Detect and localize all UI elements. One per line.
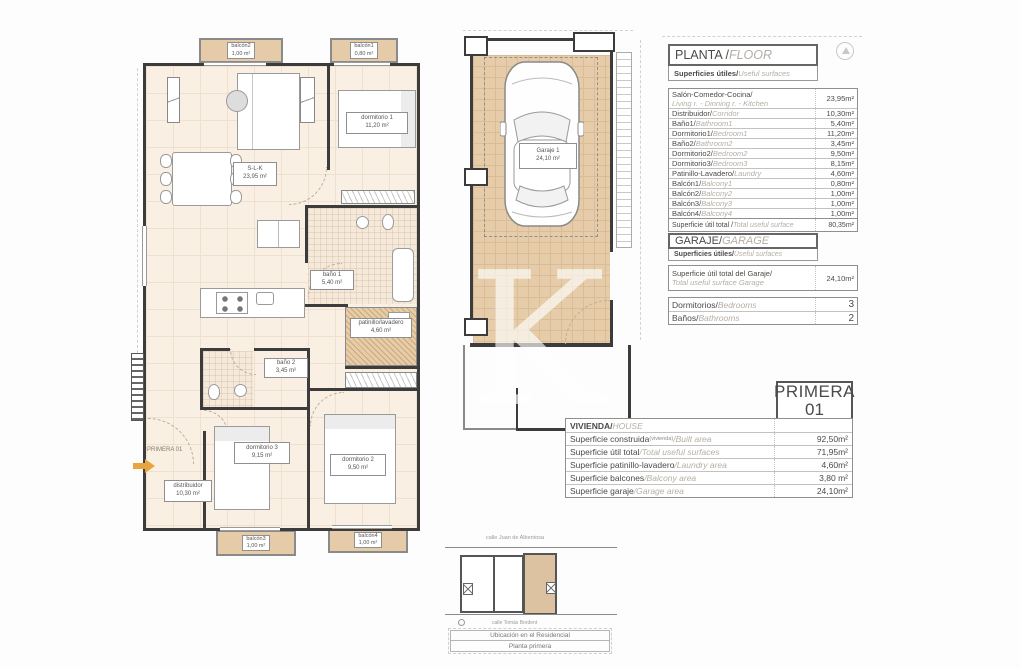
row-label-en: Bedrooms [718,300,757,310]
arrow-tip [145,459,155,473]
row-label: Balcón1/Balcony1 [669,179,815,188]
row-label-en: Bathrooms [698,313,739,323]
caption-line-2: Planta primera [450,641,610,652]
room-label-slk: S-L-K 23,95 m² [233,162,277,186]
row-label-es: Distribuidor/ [672,109,712,118]
balcony-3: balcón3 1,00 m² [216,530,296,556]
room-name: balcón3 [246,536,265,543]
floorplan-sheet: balcón2 1,00 m² balcón1 0,80 m² balcón3 … [0,0,1020,669]
row-value: 3,80 m² [774,472,852,484]
street-line [445,614,617,615]
toilet-bath1 [382,214,394,230]
row-label-en: Balcony3 [701,199,732,208]
title-block-line1: PRIMERA [774,383,855,401]
row-value: 3,45m² [815,139,857,148]
entrance-arrow-icon [133,459,157,473]
row-value: 2 [815,312,857,324]
room-label-balcon4: balcón4 1,00 m² [354,532,381,548]
row-label-es: Balcón4/ [672,209,701,218]
row-value: 1,00m² [815,199,857,208]
room-name: balcón2 [231,43,250,50]
room-name: baño 2 [277,360,295,368]
title-en: GARAGE [722,235,769,247]
row-label-en: Corridor [712,109,739,118]
wall-segment [470,56,473,168]
table-row: Balcón2/Balcony2 1,00m² [669,188,857,198]
wardrobe-dorm1 [341,190,415,204]
street-line [445,547,617,548]
row-label-es: Baño2/ [672,139,696,148]
table-row: Superficie balcones/Balcony area 3,80 m² [566,471,852,484]
elevator-shaft [131,353,144,421]
floor-surfaces-table: Salón-Comedor-Cocina/ Living r. - Dinnin… [668,88,858,232]
row-label-en: Balcony2 [701,189,732,198]
header-en: HOUSE [613,421,643,431]
row-label: VIVIENDA/HOUSE [566,419,774,432]
apartment-plan: S-L-K 23,95 m² dormitorio 1 11,20 m² bañ… [143,63,420,531]
room-name: patinillo/lavadero [358,320,403,328]
entry-label: PRIMERA 01 [147,447,182,453]
row-label-note: (vivienda) [649,436,673,442]
stair-core-icon [546,582,556,594]
room-area: 24,10 m² [536,156,560,164]
row-label-es: Patinillo-Lavadero/ [672,169,734,178]
row-label: Superficie útil total/Total useful surfa… [566,446,774,458]
wall-segment [488,38,573,41]
arrow-tail [133,463,145,469]
house-summary-table: VIVIENDA/HOUSE Superficie construida(viv… [565,418,853,498]
row-label: Dormitorio2/Bedroom2 [669,149,815,158]
room-label-dorm3: dormitorio 3 9,15 m² [234,442,290,464]
rooms-count-table: Dormitorios/Bedrooms 3 Baños/Bathrooms 2 [668,297,858,325]
pillar [464,318,488,336]
row-value: 5,40m² [815,119,857,128]
row-value: 24,10m² [815,266,857,290]
row-label: Dormitorio3/Bedroom3 [669,159,815,168]
row-label-es: Superficie construida [570,434,649,444]
furniture-fridge [257,220,300,248]
table-row: Superficie útil total del Garaje/ Total … [669,266,857,290]
row-value: 23,95m² [815,89,857,108]
row-label-en: Total useful surface Garage [672,278,764,287]
north-indicator-icon [836,42,854,60]
balcony-2: balcón2 1,00 m² [199,38,283,63]
row-label-es: Salón-Comedor-Cocina/ [672,90,752,99]
room-area: 10,30 m² [176,491,200,499]
header-es: VIVIENDA/ [570,421,613,431]
stairs-strip [616,52,632,248]
street-label-bottom: calle Tomás Bordent [492,620,537,626]
row-label: Superficie construida(vivienda)/Built ar… [566,433,774,445]
table-row: Superficie construida(vivienda)/Built ar… [566,432,852,445]
table-row: Balcón3/Balcony3 1,00m² [669,198,857,208]
pillar [573,32,615,52]
balcony-door [204,62,266,66]
row-label-en: /Balcony area [644,473,696,483]
column [167,77,180,123]
wall-segment [200,407,310,410]
kitchen-sink [256,292,274,305]
floor-panel-title: PLANTA / FLOOR [668,44,818,66]
row-label-es: Baños/ [672,313,698,323]
wall-segment [463,428,518,430]
wall-segment [327,66,330,170]
row-value [774,419,852,432]
subtitle-en: Useful surfaces [734,251,782,258]
guide-line [137,68,138,353]
wall-segment [307,388,417,391]
row-label: Salón-Comedor-Cocina/ Living r. - Dinnin… [669,89,815,108]
caption-line-1: Ubicación en el Residencial [450,630,610,641]
bathtub-bath1 [392,248,414,302]
chair [230,190,242,204]
kitchen-window [142,226,147,286]
table-row: Baño2/Bathroom2 3,45m² [669,138,857,148]
building-outline [493,555,524,613]
row-label: Distribuidor/Corridor [669,109,815,118]
row-label: Baño1/Bathroom1 [669,119,815,128]
sink-bath1 [356,216,369,229]
chair [160,190,172,204]
row-label-es: Dormitorio3/ [672,159,713,168]
stair-core-icon [463,583,473,595]
bedrooms-row: Dormitorios/Bedrooms 3 [669,298,857,311]
garage-panel-title: GARAJE/ GARAGE [668,233,818,249]
room-name: dormitorio 2 [342,457,374,465]
row-label: Balcón2/Balcony2 [669,189,815,198]
row-label: Superficie garaje/Garage area [566,485,774,497]
subtitle-en: Useful surfaces [738,69,790,78]
room-label-dorm1: dormitorio 1 11,20 m² [346,112,408,134]
row-value: 0,80m² [815,179,857,188]
guide-line [463,30,633,31]
table-row: Patinillo-Lavadero/Laundry 4,60m² [669,168,857,178]
row-label-es: Balcón3/ [672,199,701,208]
table-row: Dormitorio1/Bedroom1 11,20m² [669,128,857,138]
row-label-en: /Total useful surfaces [639,447,719,457]
guide-line [662,36,862,37]
row-label-es: Superficie útil total [570,447,639,457]
row-label: Baño2/Bathroom2 [669,139,815,148]
row-label: Balcón4/Balcony4 [669,209,815,218]
row-value: 1,00m² [815,209,857,218]
row-value: 4,60m² [774,459,852,471]
wall-segment [254,348,310,351]
subtitle-es: Superficies útiles/ [674,69,738,78]
row-label-en: Living r. - Dinning r. - Kitchen [672,99,768,108]
subtitle-es: Superficies útiles/ [674,251,734,258]
table-row: Baño1/Bathroom1 5,40m² [669,118,857,128]
title-en: FLOOR [729,48,772,62]
wardrobe-dorm2 [345,372,417,388]
room-name: distribuidor [173,483,202,491]
balcony-door [220,527,280,531]
row-label: Dormitorio1/Bedroom1 [669,129,815,138]
street-label-top: calle Juan de Albentosa [486,535,544,541]
room-name: dormitorio 3 [246,445,278,453]
row-label-es: Superficie útil total del Garaje/ [672,269,772,278]
garage-total-table: Superficie útil total del Garaje/ Total … [668,265,858,291]
row-label-es: Superficie útil total / [672,222,733,229]
wall-segment [305,304,348,307]
room-name: S-L-K [247,166,262,174]
table-row: Balcón4/Balcony4 1,00m² [669,208,857,218]
table-total-row: Superficie útil total / Total useful sur… [669,218,857,231]
row-value: 4,60m² [815,169,857,178]
furniture-dining-table [172,152,232,206]
row-value: 9,50m² [815,149,857,158]
balcony-door [332,525,392,529]
row-label-es: Dormitorios/ [672,300,718,310]
room-area: 3,45 m² [276,368,296,376]
wall-segment [610,300,613,345]
row-value: 92,50m² [774,433,852,445]
table-row: Dormitorio3/Bedroom3 8,15m² [669,158,857,168]
furniture-plant [226,90,248,112]
table-row: Balcón1/Balcony1 0,80m² [669,178,857,188]
stove [216,292,248,314]
room-area: 1,00 m² [247,543,266,550]
room-area: 23,95 m² [243,174,267,182]
room-label-bano1: baño 1 5,40 m² [310,270,354,290]
row-label: Balcón3/Balcony3 [669,199,815,208]
room-area: 11,20 m² [365,123,388,131]
wall-segment [516,388,518,430]
row-label: Superficie balcones/Balcony area [566,472,774,484]
pillar [464,36,488,56]
room-label-balcon2: balcón2 1,00 m² [227,42,254,58]
door-arc [148,418,194,464]
row-label-en: Bathroom2 [696,139,733,148]
room-name: baño 1 [323,272,341,280]
row-label-es: Dormitorio1/ [672,129,713,138]
room-name: Garaje 1 [536,148,559,156]
title-es: GARAJE/ [675,235,722,247]
row-label: Superficie útil total del Garaje/ Total … [669,266,815,290]
bed-dorm3 [214,426,270,510]
table-row: Superficie garaje/Garage area 24,10m² [566,484,852,497]
room-area: 9,15 m² [252,453,272,461]
room-label-patinillo: patinillo/lavadero 4,60 m² [350,318,412,338]
row-value: 10,30m² [815,109,857,118]
row-label-es: Superficie patinillo-lavadero [570,460,674,470]
guide-line [640,40,641,340]
table-row: Superficie patinillo-lavadero/Laundry ar… [566,458,852,471]
row-label-en: Total useful surface [733,222,793,229]
compass-needle [842,47,850,54]
wall-segment [610,52,613,252]
room-area: 1,00 m² [359,540,378,547]
row-label-en: Laundry [734,169,761,178]
chair [160,172,172,186]
row-value: 71,95m² [774,446,852,458]
row-label-en: Bedroom3 [713,159,748,168]
room-area: 1,00 m² [232,51,251,58]
row-label: Dormitorios/Bedrooms [669,298,815,311]
table-row: Distribuidor/Corridor 10,30m² [669,108,857,118]
room-area: 4,60 m² [371,328,391,336]
table-row: Superficie útil total/Total useful surfa… [566,445,852,458]
row-value: 1,00m² [815,189,857,198]
row-value: 80,35m² [815,219,857,231]
row-value: 3 [815,298,857,311]
row-label-en: Balcony4 [701,209,732,218]
row-label-en: Bedroom1 [713,129,748,138]
pillar [464,168,488,186]
title-block-line2: 01 [805,401,824,419]
row-label-es: Dormitorio2/ [672,149,713,158]
row-label-en: /Laundry area [674,460,726,470]
room-label-garaje: Garaje 1 24,10 m² [519,143,577,169]
table-row: Dormitorio2/Bedroom2 9,50m² [669,148,857,158]
row-label: Baños/Bathrooms [669,312,815,324]
row-label-en: Balcony1 [701,179,732,188]
sink-bath2 [234,384,247,397]
sheet-title-block: PRIMERA 01 [776,381,853,421]
room-name: balcón4 [358,533,377,540]
row-value: 11,20m² [815,129,857,138]
room-name: balcón1 [354,43,373,50]
row-label: Superficie patinillo-lavadero/Laundry ar… [566,459,774,471]
location-caption: Ubicación en el Residencial Planta prime… [448,628,612,654]
wall-segment [470,186,473,318]
row-label: Patinillo-Lavadero/Laundry [669,169,815,178]
table-header-row: VIVIENDA/HOUSE [566,419,852,432]
row-label: Superficie útil total / Total useful sur… [669,219,815,231]
room-label-balcon1: balcón1 0,80 m² [350,42,377,58]
row-label-en: /Garage area [634,486,684,496]
room-label-dorm2: dormitorio 2 9,50 m² [330,454,386,476]
row-value: 8,15m² [815,159,857,168]
room-label-distribuidor: distribuidor 10,30 m² [164,480,212,502]
balcony-1: balcón1 0,80 m² [330,38,398,63]
room-label-bano2: baño 2 3,45 m² [264,358,308,378]
room-area: 9,50 m² [348,465,368,473]
row-label-es: Superficie balcones [570,473,644,483]
balcony-door [334,62,390,66]
bathrooms-row: Baños/Bathrooms 2 [669,311,857,324]
row-label-es: Balcón1/ [672,179,701,188]
room-name: dormitorio 1 [361,115,393,123]
row-value: 24,10m² [774,485,852,497]
row-label-es: Superficie garaje [570,486,634,496]
toilet-bath2 [208,384,220,400]
chair [160,154,172,168]
wall-segment [463,345,465,430]
wall-segment [345,366,417,369]
column [300,77,315,123]
room-area: 5,40 m² [322,280,342,288]
row-label-en: /Built area [673,434,711,444]
row-label-en: Bedroom2 [713,149,748,158]
garage-panel-subtitle: Superficies útiles/ Useful surfaces [668,249,818,261]
row-label-es: Baño1/ [672,119,696,128]
room-label-balcon3: balcón3 1,00 m² [242,535,269,551]
row-label-en: Bathroom1 [696,119,733,128]
floor-panel-subtitle: Superficies útiles/ Useful surfaces [668,66,818,81]
room-area: 0,80 m² [355,51,374,58]
title-es: PLANTA / [675,48,729,62]
row-label-es: Balcón2/ [672,189,701,198]
door-arc [289,167,327,205]
table-row: Salón-Comedor-Cocina/ Living r. - Dinnin… [669,89,857,108]
furniture-sofa [237,73,300,150]
roundabout-icon [458,619,465,626]
